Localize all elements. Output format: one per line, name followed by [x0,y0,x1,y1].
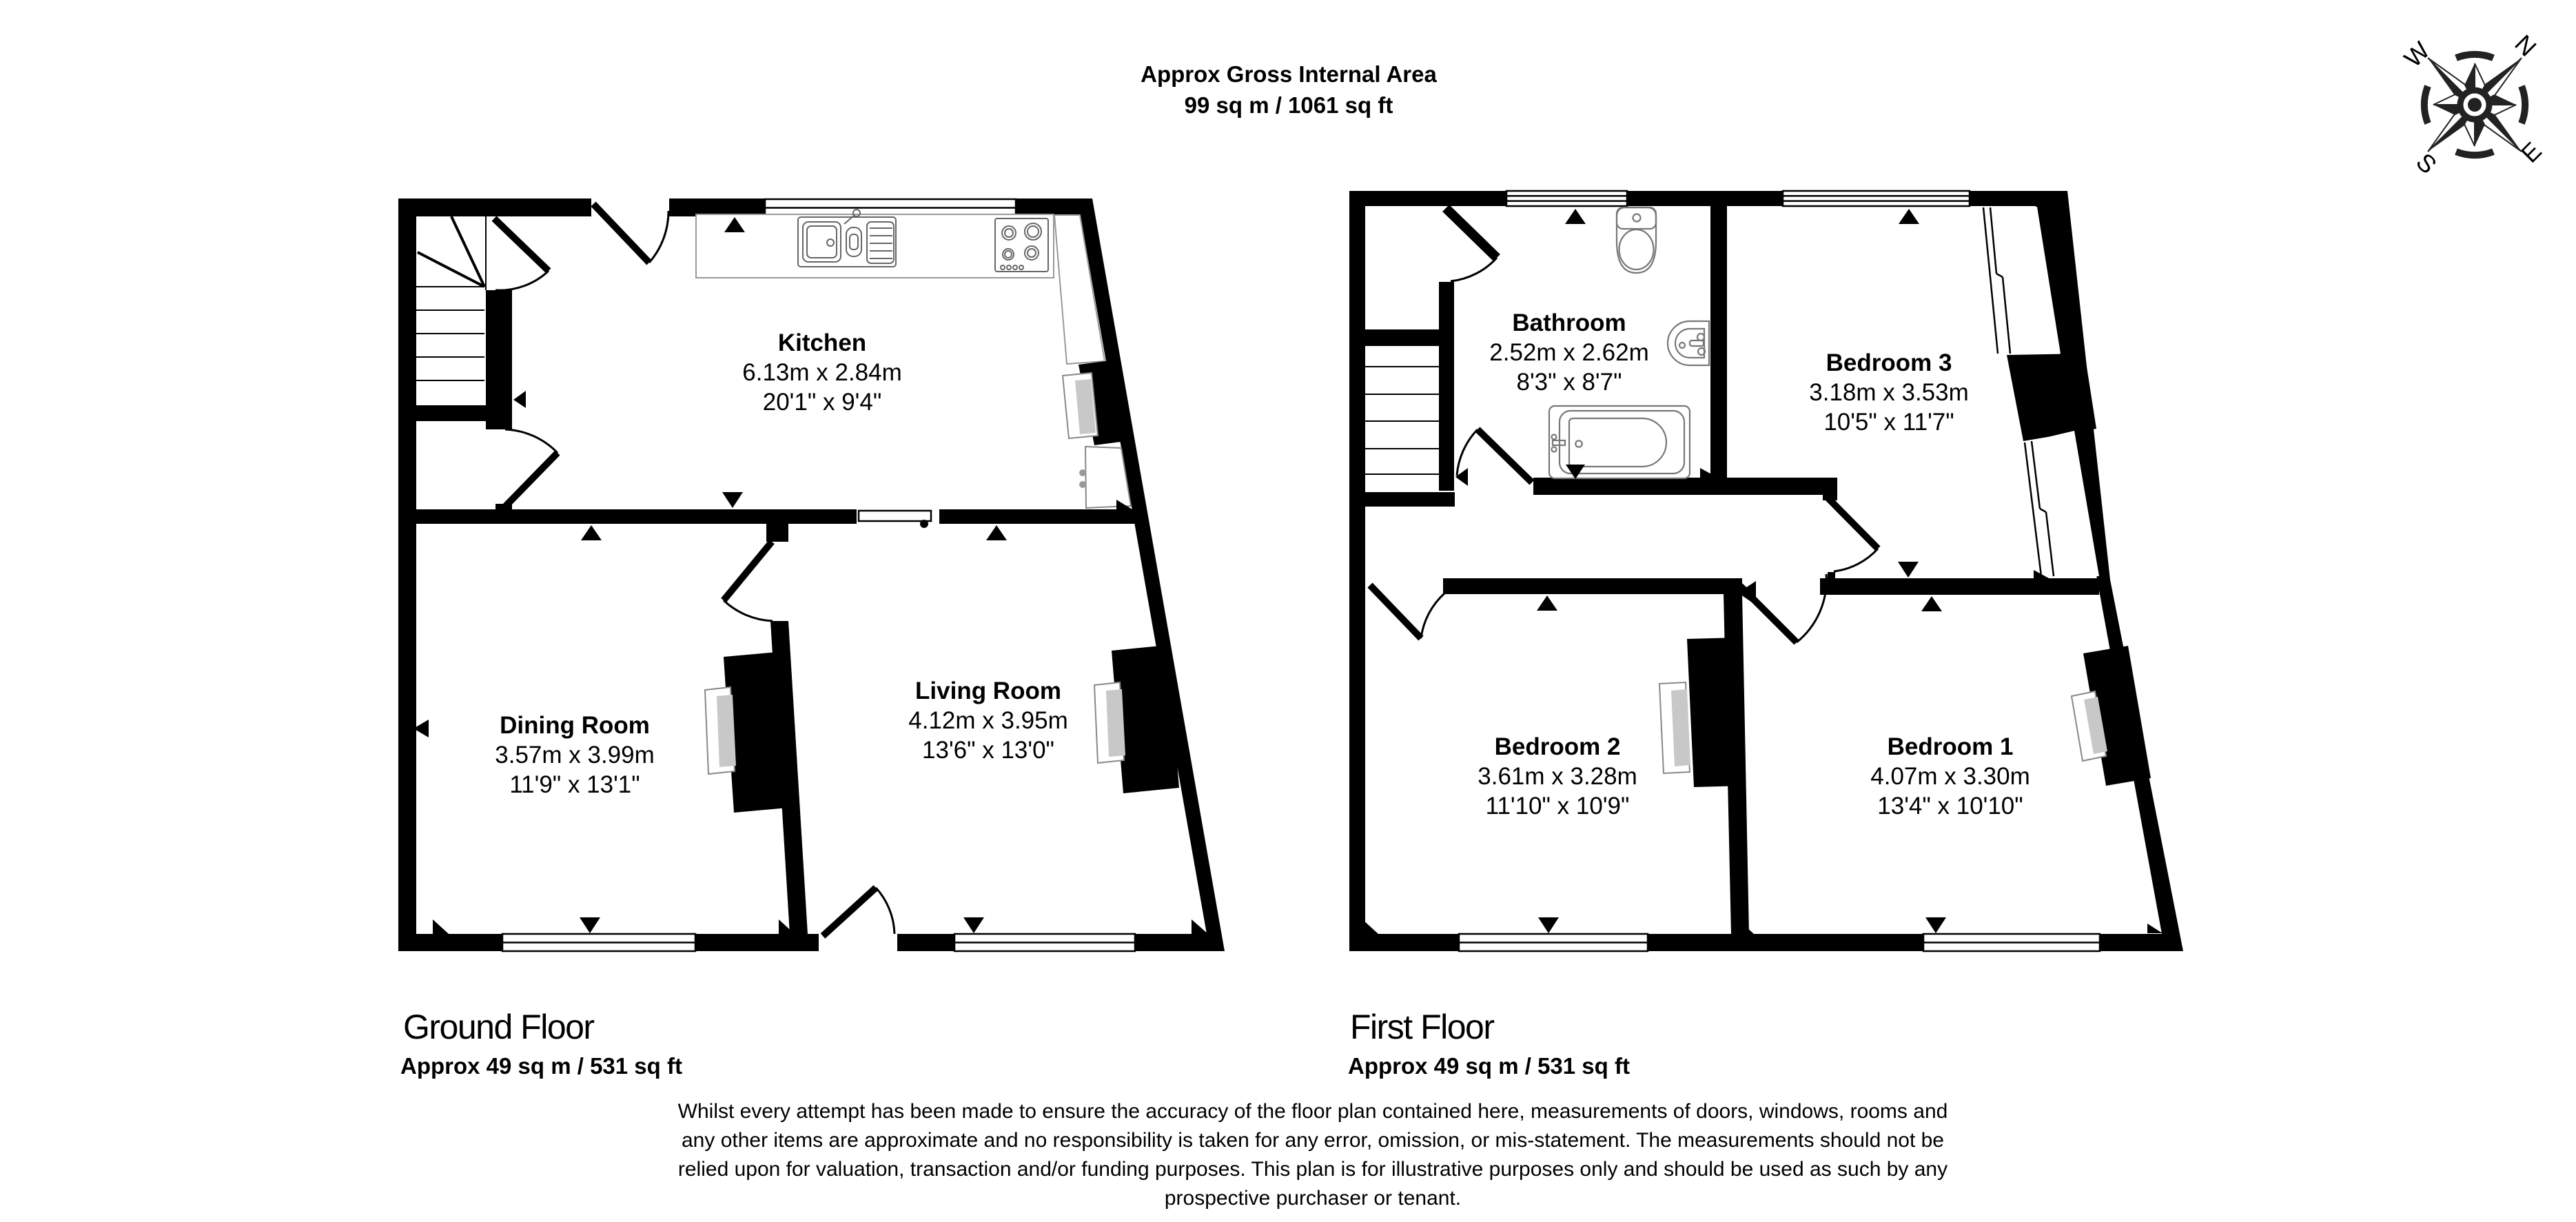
svg-text:Approx 49 sq m / 531 sq ft: Approx 49 sq m / 531 sq ft [400,1053,682,1079]
svg-text:Bedroom 2: Bedroom 2 [1495,733,1621,760]
svg-text:prospective purchaser or tenan: prospective purchaser or tenant. [1165,1187,1461,1210]
svg-text:4.07m x 3.30m: 4.07m x 3.30m [1870,763,2030,790]
svg-text:13'6" x 13'0": 13'6" x 13'0" [922,737,1054,764]
svg-text:4.12m x 3.95m: 4.12m x 3.95m [908,707,1068,734]
svg-text:relied upon for valuation, tra: relied upon for valuation, transaction a… [678,1158,1948,1181]
svg-text:any other items are approximat: any other items are approximate and no r… [682,1129,1944,1152]
svg-text:Bedroom 3: Bedroom 3 [1826,349,1952,376]
svg-text:13'4" x 10'10": 13'4" x 10'10" [1877,793,2023,819]
svg-text:Dining Room: Dining Room [500,712,650,739]
svg-text:8'3" x 8'7": 8'3" x 8'7" [1516,369,1622,396]
svg-text:Bathroom: Bathroom [1512,309,1626,336]
svg-text:Approx Gross Internal Area: Approx Gross Internal Area [1141,61,1437,87]
svg-text:Ground Floor: Ground Floor [403,1008,594,1046]
svg-text:Kitchen: Kitchen [778,329,866,356]
svg-text:3.61m x 3.28m: 3.61m x 3.28m [1478,763,1637,790]
svg-text:3.18m x 3.53m: 3.18m x 3.53m [1809,379,1969,406]
svg-text:2.52m x 2.62m: 2.52m x 2.62m [1489,339,1649,366]
svg-text:3.57m x 3.99m: 3.57m x 3.99m [495,742,655,768]
svg-text:11'10" x 10'9": 11'10" x 10'9" [1486,793,1630,819]
svg-text:99 sq m / 1061 sq ft: 99 sq m / 1061 sq ft [1185,92,1393,118]
svg-text:10'5" x 11'7": 10'5" x 11'7" [1823,409,1954,436]
svg-text:Approx 49 sq m / 531 sq ft: Approx 49 sq m / 531 sq ft [1348,1053,1630,1079]
svg-text:6.13m x 2.84m: 6.13m x 2.84m [742,359,902,386]
svg-text:11'9" x 13'1": 11'9" x 13'1" [509,771,640,798]
svg-text:Bedroom 1: Bedroom 1 [1888,733,2014,760]
svg-text:First Floor: First Floor [1350,1008,1494,1046]
svg-text:Whilst every attempt has been: Whilst every attempt has been made to en… [678,1100,1948,1123]
svg-text:20'1" x 9'4": 20'1" x 9'4" [763,389,882,416]
svg-text:Living Room: Living Room [915,678,1061,704]
